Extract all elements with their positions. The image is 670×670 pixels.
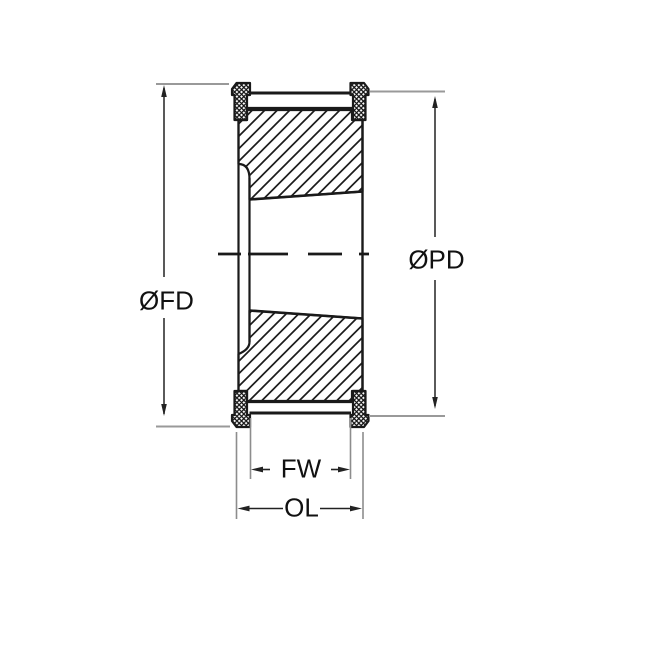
web-section-upper	[239, 110, 363, 200]
drawing-canvas: ØFD ØPD FW OL	[0, 0, 670, 670]
flange-top-left	[232, 83, 250, 120]
flange-bottom-right	[351, 391, 369, 427]
fd-label: ØFD	[139, 286, 194, 316]
flange-top-right	[351, 83, 369, 120]
pulley-technical-drawing: ØFD ØPD FW OL	[0, 0, 670, 670]
fw-label: FW	[281, 454, 322, 484]
flange-bottom-left	[232, 391, 250, 427]
pd-label: ØPD	[408, 245, 464, 275]
web-section-lower	[239, 311, 363, 402]
ol-label: OL	[284, 493, 319, 523]
